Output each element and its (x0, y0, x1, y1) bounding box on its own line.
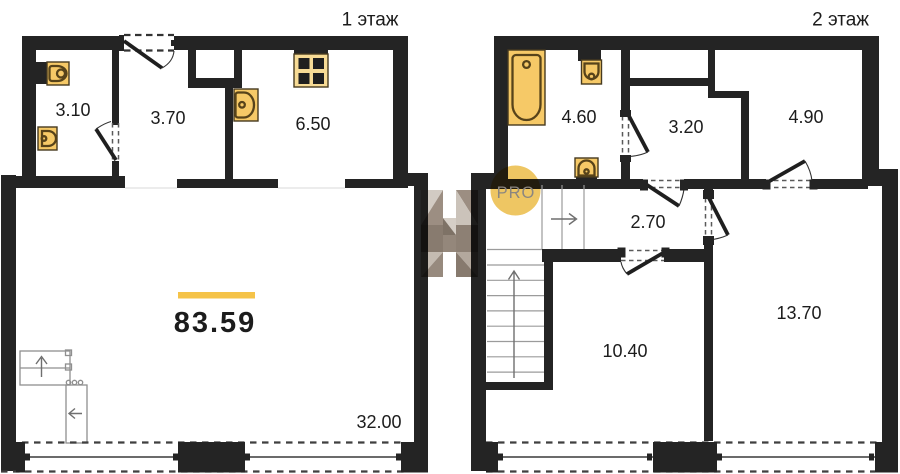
svg-text:2 этаж: 2 этаж (812, 10, 869, 31)
svg-text:83.59: 83.59 (174, 307, 257, 339)
svg-text:3.10: 3.10 (55, 100, 90, 120)
svg-text:4.60: 4.60 (561, 107, 596, 127)
svg-text:2.70: 2.70 (630, 212, 665, 232)
svg-text:10.40: 10.40 (602, 341, 647, 361)
svg-text:32.00: 32.00 (356, 412, 401, 432)
svg-text:13.70: 13.70 (776, 303, 821, 323)
svg-text:3.70: 3.70 (150, 108, 185, 128)
svg-text:PRO: PRO (497, 184, 536, 202)
svg-text:1 этаж: 1 этаж (342, 10, 399, 31)
svg-text:6.50: 6.50 (295, 114, 330, 134)
svg-text:4.90: 4.90 (788, 107, 823, 127)
svg-text:3.20: 3.20 (668, 117, 703, 137)
